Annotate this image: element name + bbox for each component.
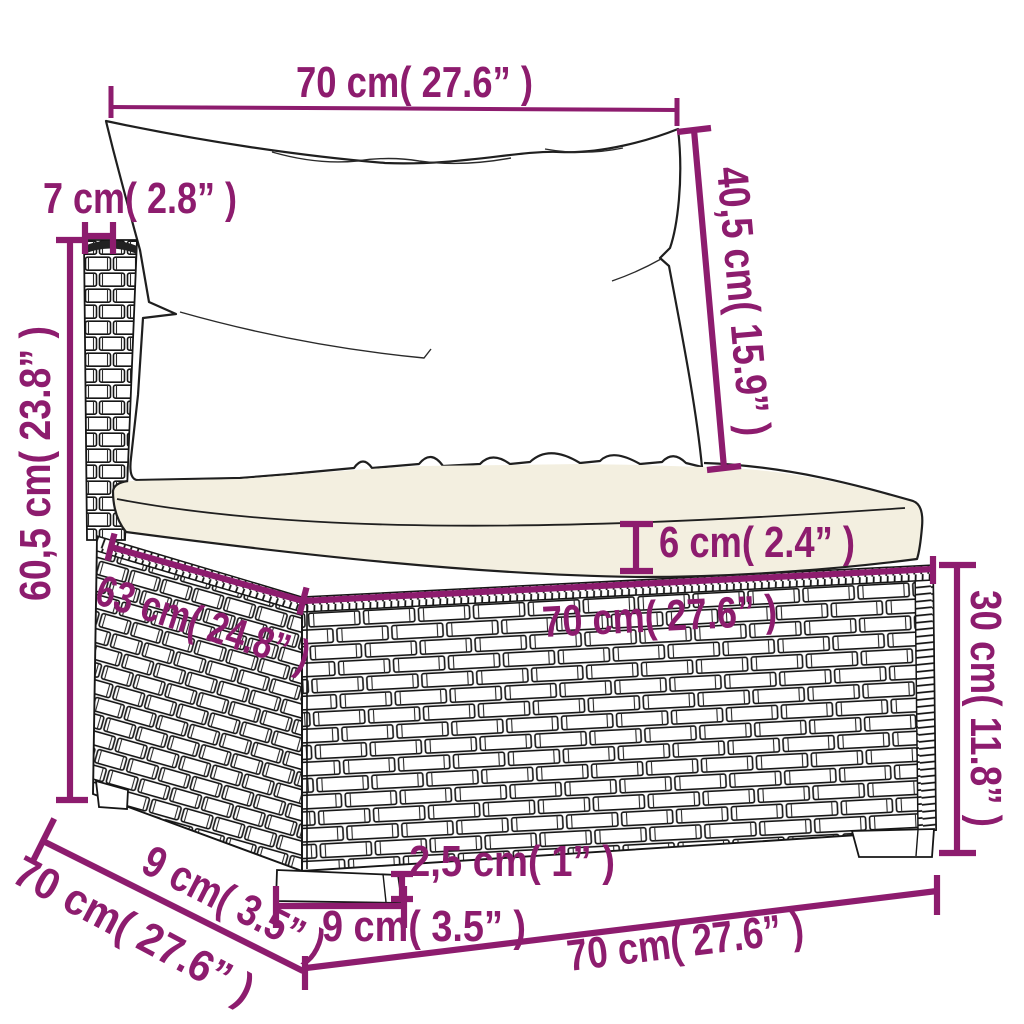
svg-text:7 cm( 2.8” ): 7 cm( 2.8” ) [43,174,237,223]
svg-text:70 cm( 27.6” ): 70 cm( 27.6” ) [564,903,806,981]
svg-text:2,5 cm( 1” ): 2,5 cm( 1” ) [409,837,615,886]
svg-text:6 cm( 2.4” ): 6 cm( 2.4” ) [659,518,855,567]
svg-text:30 cm( 11.8” ): 30 cm( 11.8” ) [961,590,1010,827]
svg-text:70 cm( 27.6” ): 70 cm( 27.6” ) [296,58,533,107]
svg-text:60,5 cm( 23.8” ): 60,5 cm( 23.8” ) [11,326,60,601]
